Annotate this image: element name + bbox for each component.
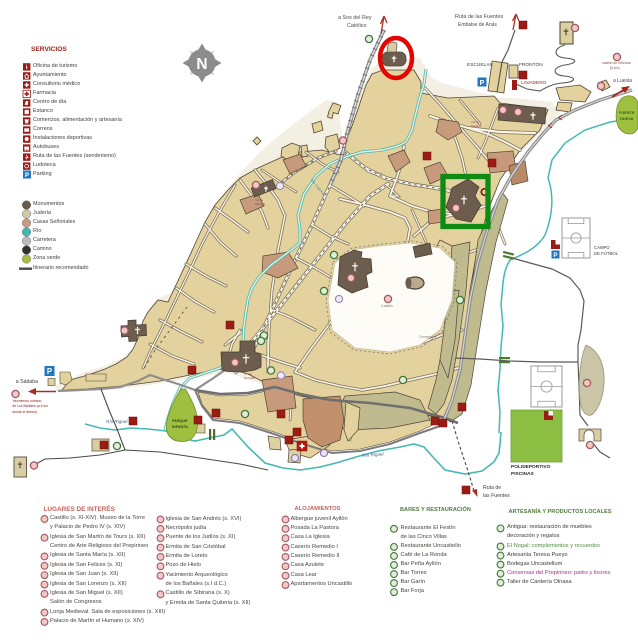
svg-text:P: P <box>25 172 29 179</box>
svg-text:P: P <box>47 367 52 376</box>
svg-text:P: P <box>480 80 485 87</box>
svg-text:N: N <box>196 56 207 73</box>
svg-text:P: P <box>553 252 557 259</box>
